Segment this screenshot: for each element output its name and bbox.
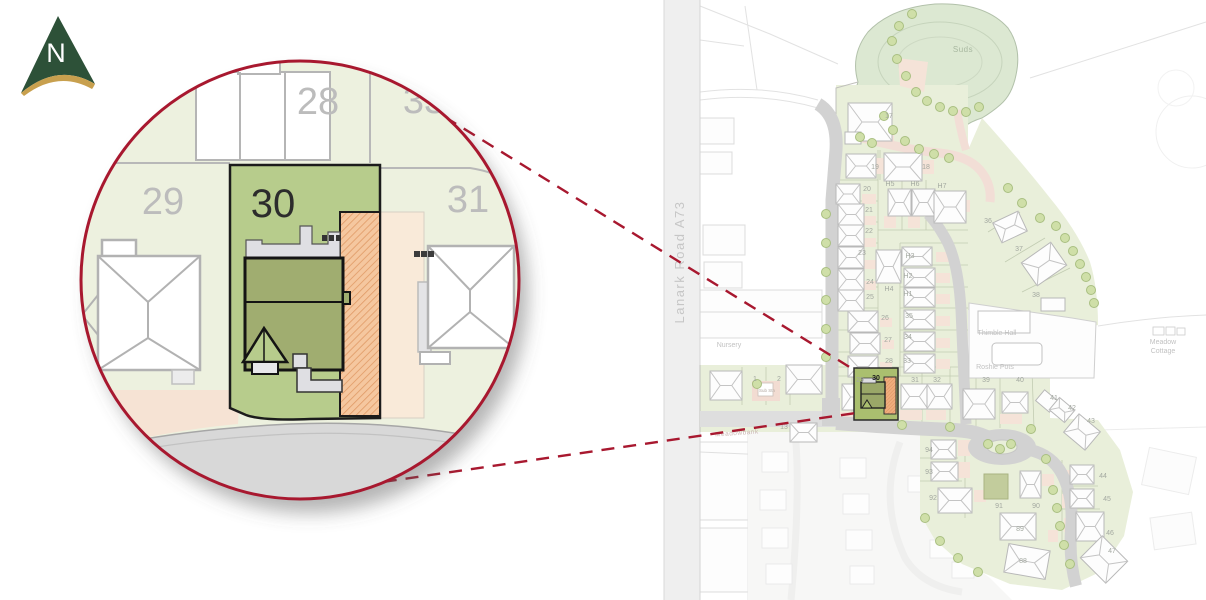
- north-label: N: [46, 38, 66, 68]
- site-plan-page: Lanark Road A73: [0, 0, 1206, 600]
- lanark-road: Lanark Road A73: [664, 0, 700, 600]
- plot-number: 33: [903, 358, 911, 365]
- place-label: Meadow: [1150, 339, 1177, 346]
- plot-number: 41: [1050, 395, 1058, 402]
- plot-number: 40: [1016, 377, 1024, 384]
- place-label: Suds: [953, 45, 973, 54]
- tree-symbol: [893, 55, 902, 64]
- tree-symbol: [936, 537, 945, 546]
- tree-symbol: [1027, 425, 1036, 434]
- house-symbol: [1002, 392, 1028, 413]
- site-map: Lanark Road A73: [664, 0, 1206, 600]
- plot-number: 34: [904, 334, 912, 341]
- tree-symbol: [974, 568, 983, 577]
- house-symbol: [934, 191, 966, 223]
- house-symbol: [848, 311, 878, 332]
- tree-symbol: [889, 126, 898, 135]
- mag-plot33-building: [433, 73, 500, 108]
- house-symbol: [931, 440, 956, 459]
- house-symbol: [850, 333, 880, 354]
- tree-symbol: [930, 150, 939, 159]
- plot-number: 88: [1019, 558, 1027, 565]
- plot-number: H7: [938, 183, 947, 190]
- place-label: Roshie Pots: [976, 364, 1014, 371]
- plot-number: 32: [933, 377, 941, 384]
- plot-number: 37: [1015, 246, 1023, 253]
- tree-symbol: [1061, 234, 1070, 243]
- tree-symbol: [856, 133, 865, 142]
- tree-symbol: [962, 108, 971, 117]
- plot-number: 47: [1108, 548, 1116, 555]
- tree-symbol: [1087, 286, 1096, 295]
- plot-number: 43: [1087, 418, 1095, 425]
- tree-symbol: [902, 72, 911, 81]
- house-symbol: [1070, 465, 1094, 484]
- house-symbol: [1076, 512, 1104, 541]
- tree-symbol: [975, 103, 984, 112]
- place-label: Cottage: [1151, 348, 1176, 355]
- plot-number: 1: [753, 376, 757, 383]
- tree-symbol: [1056, 522, 1065, 531]
- house-symbol: [963, 389, 995, 419]
- plot-number: H4: [885, 286, 894, 293]
- mag-plot30-driveway: [340, 212, 380, 416]
- plot-number: 92: [929, 495, 937, 502]
- plot-number: 28: [885, 358, 893, 365]
- plot-number: 44: [1099, 473, 1107, 480]
- tree-symbol: [1053, 504, 1062, 513]
- plot-number: 46: [1106, 530, 1114, 537]
- house-symbol: [938, 488, 972, 513]
- tree-symbol: [888, 37, 897, 46]
- tree-symbol: [936, 103, 945, 112]
- tree-symbol: [1076, 260, 1085, 269]
- tree-symbol: [1042, 455, 1051, 464]
- meadow-cottage-buildings: [1153, 327, 1185, 335]
- plot-number: 22: [865, 228, 873, 235]
- tree-symbol: [921, 514, 930, 523]
- house-symbol: [710, 371, 742, 400]
- plot-number: 38: [1032, 292, 1040, 299]
- plot-number: 90: [1032, 503, 1040, 510]
- tree-symbol: [1049, 486, 1058, 495]
- place-label: Nursery: [717, 342, 742, 349]
- plot-number: 42: [1068, 405, 1076, 412]
- plot-number: 35: [905, 313, 913, 320]
- tree-symbol: [1004, 184, 1013, 193]
- tree-symbol: [822, 325, 831, 334]
- house-symbol: [838, 204, 864, 225]
- plot-number: H2: [904, 273, 913, 280]
- tree-symbol: [1052, 222, 1061, 231]
- tree-symbol: [1060, 541, 1069, 550]
- plot-number: 29: [856, 377, 864, 384]
- tree-symbol: [996, 445, 1005, 454]
- tree-symbol: [868, 139, 877, 148]
- mag-plot31-bins: [414, 251, 434, 257]
- plot-number: 18: [922, 164, 930, 171]
- tree-symbol: [923, 97, 932, 106]
- tree-symbol: [822, 210, 831, 219]
- house-symbol: [912, 189, 935, 216]
- plot-number: 17: [885, 113, 893, 120]
- house-symbol: [838, 290, 864, 311]
- plot-number-highlight: 30: [872, 375, 880, 382]
- tree-symbol: [1066, 560, 1075, 569]
- plot-number: H1: [904, 291, 913, 298]
- magnifier-plot-number: 29: [142, 181, 184, 223]
- plot-number: 94: [925, 447, 933, 454]
- house-symbol: [927, 384, 952, 409]
- house-symbol: [836, 184, 860, 204]
- mag-plot29-house: [82, 240, 200, 384]
- house-symbol: [1070, 489, 1094, 508]
- tree-symbol: [949, 107, 958, 116]
- house-symbol: [884, 153, 922, 181]
- magnifier-plot-number: 28: [297, 81, 339, 123]
- tree-symbol: [1007, 440, 1016, 449]
- plot-number: H5: [886, 181, 895, 188]
- tree-symbol: [1082, 273, 1091, 282]
- tree-symbol: [1036, 214, 1045, 223]
- house-symbol: [1041, 298, 1065, 311]
- plot-number: 26: [881, 315, 889, 322]
- tree-symbol: [898, 421, 907, 430]
- plot-number: 23: [858, 250, 866, 257]
- tree-symbol: [915, 145, 924, 154]
- tree-symbol: [945, 154, 954, 163]
- house-symbol: [838, 225, 864, 246]
- plot-number: 31: [911, 377, 919, 384]
- house-91-olive: [984, 474, 1008, 499]
- tree-symbol: [984, 440, 993, 449]
- tree-symbol: [822, 239, 831, 248]
- tree-symbol: [895, 22, 904, 31]
- tree-symbol: [954, 554, 963, 563]
- plot-number: 91: [995, 503, 1003, 510]
- plot-number: 20: [863, 186, 871, 193]
- plot-number: 2: [777, 376, 781, 383]
- plot-number: 39: [982, 377, 990, 384]
- house-symbol: [838, 269, 864, 290]
- magnifier-plot-number: 31: [447, 179, 489, 221]
- plot-number: 45: [1103, 496, 1111, 503]
- plot-number: 36: [984, 218, 992, 225]
- tree-symbol: [1018, 199, 1027, 208]
- plot-number: 19: [871, 164, 879, 171]
- plot-number: 93: [925, 469, 933, 476]
- tree-symbol: [901, 137, 910, 146]
- place-label: Thimble Hall: [978, 330, 1017, 337]
- tree-symbol: [908, 10, 917, 19]
- mag-plot31-house: [414, 246, 514, 364]
- plot-number: 24: [866, 279, 874, 286]
- mag-plot30-bins: [322, 235, 341, 241]
- house-symbol: [1020, 471, 1041, 498]
- plot-number: 27: [884, 337, 892, 344]
- tree-symbol: [822, 296, 831, 305]
- tree-symbol: [1090, 299, 1099, 308]
- plot-number: 21: [865, 207, 873, 214]
- tree-symbol: [946, 423, 955, 432]
- north-arrow: N: [21, 16, 95, 96]
- plot-number: 25: [866, 294, 874, 301]
- magnifier-plot-number: 30: [251, 182, 296, 226]
- house-symbol: [790, 423, 817, 442]
- house-symbol: [901, 384, 928, 409]
- house-symbol: [931, 462, 958, 481]
- plot-number: 89: [1016, 526, 1024, 533]
- house-symbol: [888, 189, 911, 216]
- house-symbol: [786, 365, 822, 394]
- plot-number: H3: [906, 253, 915, 260]
- tree-symbol: [1069, 247, 1078, 256]
- tree-symbol: [822, 268, 831, 277]
- plot-number: H6: [911, 181, 920, 188]
- site-plan-svg: Lanark Road A73: [0, 0, 1206, 600]
- house-symbol: [876, 250, 901, 283]
- tree-symbol: [912, 88, 921, 97]
- place-label: Sub Stn: [759, 388, 776, 393]
- plot-number-highlight: 30: [872, 375, 880, 382]
